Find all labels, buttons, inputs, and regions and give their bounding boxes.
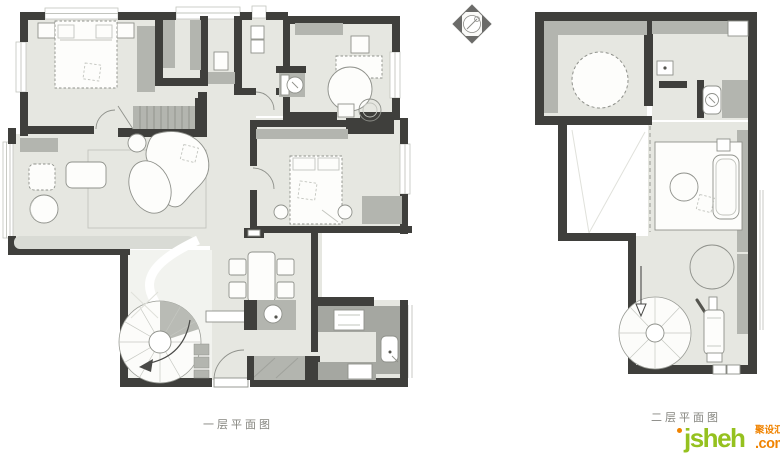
chair [351,36,369,53]
void-opening [567,125,648,236]
side-table [128,134,146,152]
stool [274,205,288,219]
logo-dot-icon [677,428,682,433]
kitchen-island [244,300,296,330]
wardrobe [362,196,402,224]
desk [659,81,687,88]
first-floor-plan [3,6,412,387]
sofa [66,162,106,188]
sideboard [206,311,246,322]
skylight [728,21,748,36]
double-bed [290,156,342,224]
logo-chinese-name: 聚设汇 [755,426,780,436]
floor-plan-page: 一层平面图 二层平面图 jsheh 聚设汇 .com [0,0,780,456]
bathtub [713,155,739,219]
bench-sofa [247,356,320,380]
water-closet [703,80,748,118]
wardrobe [544,21,647,35]
wardrobe [737,254,748,334]
nightstand [38,23,55,38]
dining-chair [229,282,246,298]
logo-side: 聚设汇 .com [755,426,780,452]
wardrobe [137,26,155,92]
compass-icon [453,5,491,43]
stool [338,205,352,219]
dining-chair [229,259,246,275]
dining-chair [277,259,294,275]
wardrobe [544,35,558,113]
first-floor-caption: 一层平面图 [168,416,308,432]
stool [717,139,730,151]
logo-name: jsheh [684,424,744,452]
sink [381,336,398,362]
shelf [295,23,343,35]
round-chair [30,195,58,223]
dining-table [248,252,275,302]
console [256,129,348,139]
armchair [29,164,55,190]
entry-door-threshold [214,378,248,387]
nightstand [117,23,134,38]
powder-room [279,73,305,97]
double-bed [55,21,117,88]
floor-plans-drawing [0,0,780,456]
window-bench [14,236,194,249]
logo-tld: .com [755,437,780,452]
round-element [572,52,628,108]
tv-cabinet [20,138,58,152]
second-floor-plan [535,12,763,374]
cooktop [334,310,364,330]
stool [338,104,354,117]
master-bedroom [38,21,155,92]
appliance [348,364,372,379]
cabinet [652,21,728,34]
dining-chair [277,282,294,298]
watermark-logo: jsheh 聚设汇 .com [684,424,780,456]
